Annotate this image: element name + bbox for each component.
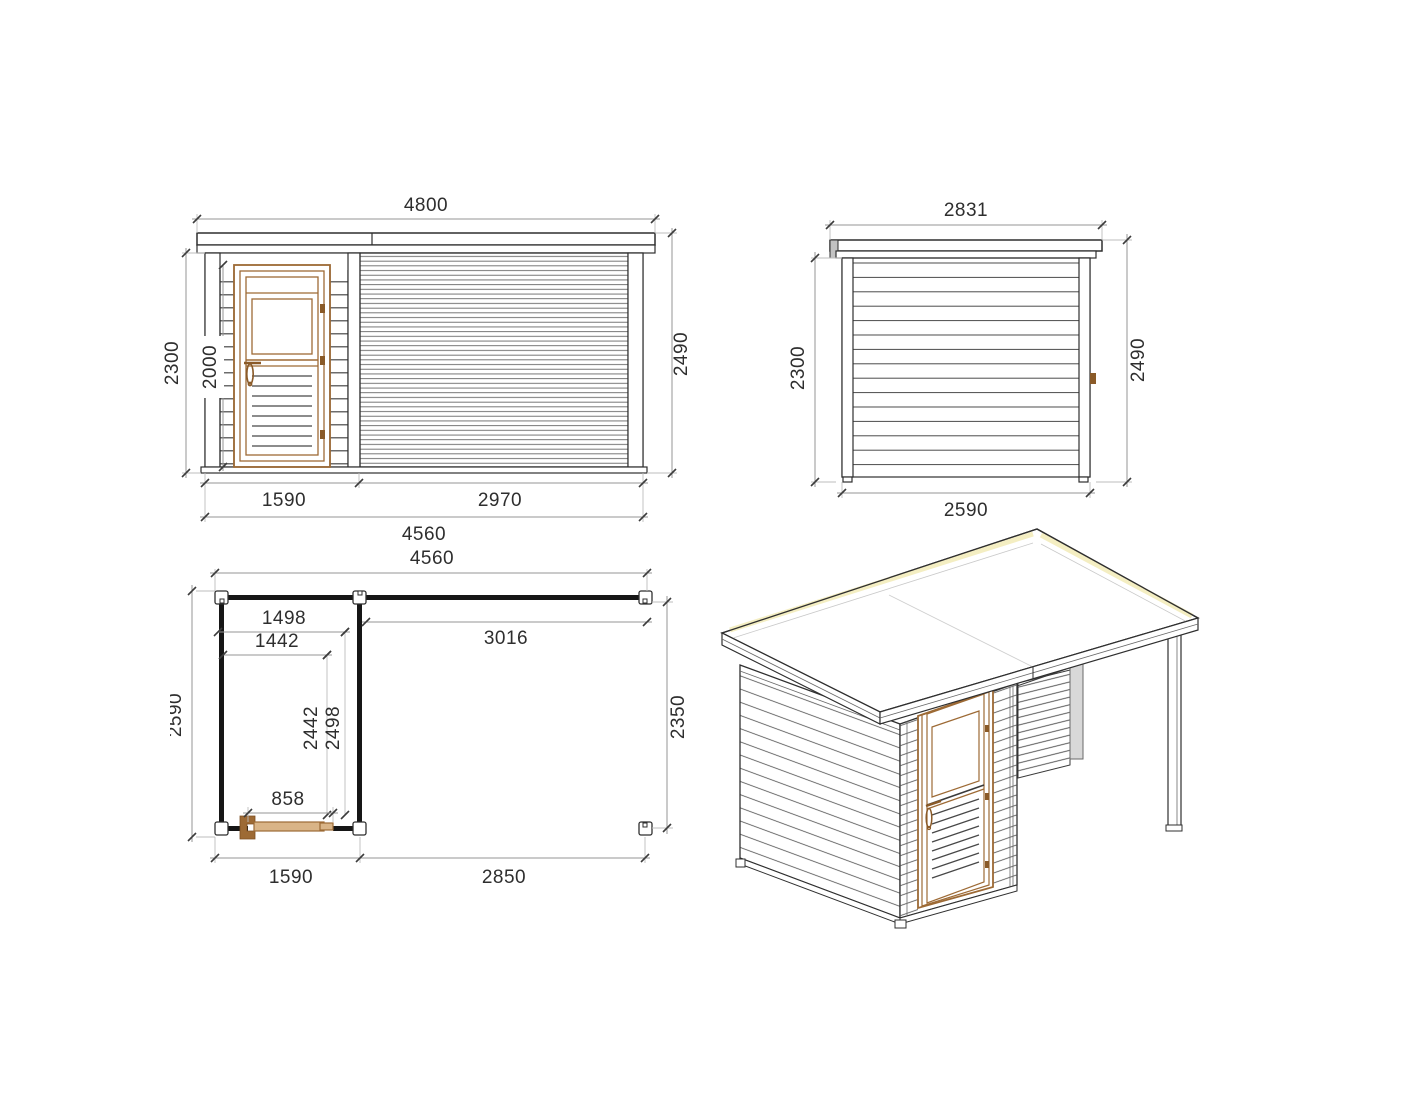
iso-screen-post (1070, 663, 1083, 759)
dim-label-2590-plan: 2590 (170, 693, 186, 737)
dim-label-3016: 3016 (484, 628, 528, 649)
iso-pergola-post (1168, 625, 1181, 827)
isometric-view (700, 515, 1240, 945)
plan-post-bottom-left (215, 822, 228, 835)
dim-plan-canopy-span: 3016 (362, 618, 652, 649)
dim-label-2000: 2000 (200, 345, 221, 389)
dim-label-2498: 2498 (323, 706, 344, 750)
iso-siding-right-of-door (993, 683, 1017, 893)
dim-front-left-height: 2300 (162, 248, 205, 478)
dim-plan-total-depth: 2590 (170, 585, 215, 842)
dim-label-2300-side: 2300 (790, 346, 809, 390)
dim-plan-canopy-depth: 2350 (652, 596, 689, 834)
dim-label-2970: 2970 (478, 490, 522, 511)
dim-label-4560-plan: 4560 (410, 548, 454, 569)
front-roof (197, 233, 655, 253)
dim-label-4800: 4800 (404, 195, 448, 216)
side-roof (830, 240, 1102, 258)
dim-label-1590: 1590 (262, 490, 306, 511)
dim-label-2850: 2850 (482, 867, 526, 888)
side-foot-left (843, 477, 852, 482)
dim-label-2490: 2490 (671, 332, 692, 376)
dim-label-1498: 1498 (262, 608, 306, 629)
plan-post-bottom-middle (353, 822, 366, 835)
dim-front-bottom-sections: 1590 2970 (200, 473, 648, 522)
dim-front-total-width: 4560 (200, 513, 648, 545)
dim-label-1590-plan: 1590 (269, 867, 313, 888)
iso-door (918, 690, 993, 908)
dim-plan-door-opening: 858 (243, 789, 338, 822)
dim-side-right-height: 2490 (1096, 234, 1149, 487)
dim-front-right-height: 2490 (647, 228, 692, 478)
dim-label-2442: 2442 (301, 706, 322, 750)
side-foot-right (1079, 477, 1088, 482)
plan-door (240, 816, 333, 839)
iso-slat-screen (1018, 670, 1070, 778)
dim-plan-room-depths: 2442 2498 (301, 628, 349, 819)
dim-label-2831: 2831 (944, 200, 988, 221)
dim-plan-bottom-sections: 1590 2850 (210, 837, 650, 888)
front-right-post (628, 253, 643, 467)
iso-siding-left-of-door (900, 718, 918, 918)
dim-side-roof-depth: 2831 (825, 200, 1107, 240)
dim-front-roof-width: 4800 (192, 195, 660, 233)
dim-label-1442: 1442 (255, 631, 299, 652)
dim-label-2350: 2350 (668, 695, 689, 739)
floor-plan-view: 4560 1498 1442 3016 2590 (170, 545, 715, 913)
side-left-post (842, 258, 853, 477)
side-elevation-view: 2831 2300 2490 2590 (790, 190, 1180, 535)
dim-side-left-height: 2300 (790, 252, 842, 487)
dim-plan-room-glass: 1442 (219, 631, 332, 659)
front-wall (201, 253, 647, 473)
dim-plan-total-width: 4560 (210, 548, 652, 591)
side-right-post (1079, 258, 1090, 477)
dim-label-858: 858 (271, 789, 304, 810)
side-door-handle-icon (1090, 373, 1096, 384)
dim-label-4560-front: 4560 (402, 524, 446, 545)
front-elevation-view: 4800 2300 2000 2490 (160, 190, 720, 550)
iso-post-foot (1166, 825, 1182, 831)
technical-drawing-canvas: 4800 2300 2000 2490 (0, 0, 1422, 1100)
dim-label-2490-side: 2490 (1128, 338, 1149, 382)
front-ladder-right (330, 270, 348, 467)
side-wall (842, 258, 1096, 482)
front-divider-post (348, 253, 360, 467)
front-slat-wall (360, 253, 628, 467)
dim-label-2300: 2300 (162, 341, 183, 385)
